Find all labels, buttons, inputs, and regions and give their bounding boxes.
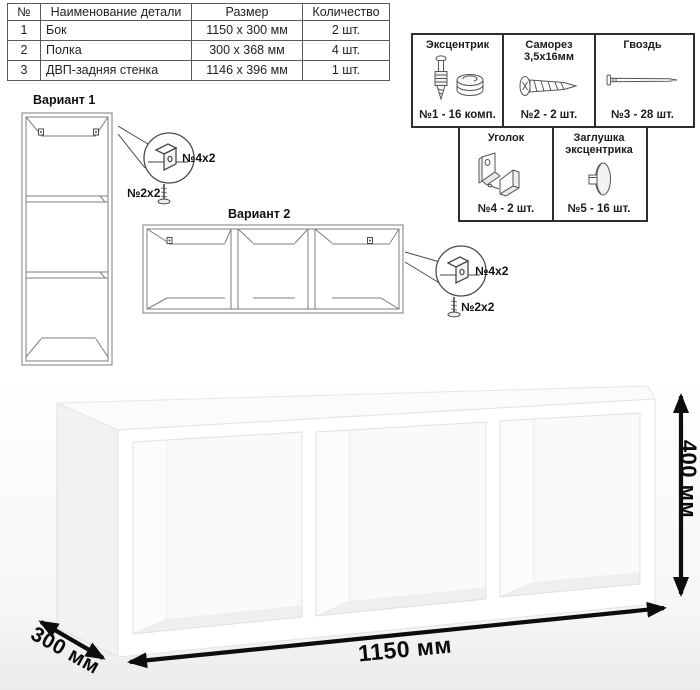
nail-icon	[603, 70, 683, 90]
variant2-screw-label: №2х2	[461, 300, 494, 314]
part-name: Бок	[41, 21, 192, 41]
hardware-item-nail: Гвоздь №3 - 28 шт.	[594, 35, 689, 126]
part-name: Полка	[41, 41, 192, 61]
variant1-bracket-label: №4х2	[182, 151, 215, 165]
part-num: 1	[8, 21, 41, 41]
corner-bracket-icon	[473, 150, 539, 198]
table-row: 3 ДВП-задняя стенка 1146 x 396 мм 1 шт.	[8, 61, 390, 81]
hardware-item-cam-cap: Заглушка эксцентрика №5 - 16 шт.	[552, 128, 644, 220]
part-size: 1146 x 396 мм	[192, 61, 303, 81]
variant1-screw-label: №2х2	[127, 186, 160, 200]
hardware-item-subtitle: эксцентрика	[565, 144, 633, 156]
part-size: 300 x 368 мм	[192, 41, 303, 61]
hardware-item-count: №2 - 2 шт.	[521, 109, 577, 121]
part-qty: 4 шт.	[303, 41, 390, 61]
hardware-item-title: Эксцентрик	[426, 39, 489, 51]
hardware-item-title: Заглушка	[573, 132, 624, 144]
hardware-item-screw: Саморез 3,5х16мм №2 - 2 шт.	[502, 35, 594, 126]
assembly-instruction-sheet: { "parts_table": { "headers": ["№", "Наи…	[0, 0, 700, 690]
hardware-item-count: №3 - 28 шт.	[611, 109, 674, 121]
part-qty: 1 шт.	[303, 61, 390, 81]
parts-table-header-row: № Наименование детали Размер Количество	[8, 4, 390, 21]
screw-icon	[516, 70, 582, 102]
hardware-item-subtitle: 3,5х16мм	[524, 51, 574, 63]
variant2-bracket-label: №4х2	[475, 264, 508, 278]
hardware-item-title: Гвоздь	[623, 39, 661, 51]
bracket-marks	[167, 238, 373, 244]
part-num: 3	[8, 61, 41, 81]
col-header-qty: Количество	[303, 4, 390, 21]
height-dimension-label: 400 мм	[675, 419, 700, 539]
parts-table: № Наименование детали Размер Количество …	[7, 3, 390, 81]
table-row: 2 Полка 300 x 368 мм 4 шт.	[8, 41, 390, 61]
hardware-box-top-row: Эксцентрик №1 - 16 комп.	[411, 33, 695, 128]
col-header-name: Наименование детали	[41, 4, 192, 21]
hardware-item-title: Саморез	[525, 39, 572, 51]
table-row: 1 Бок 1150 x 300 мм 2 шт.	[8, 21, 390, 41]
eccentric-cam-icon	[422, 54, 494, 106]
hardware-item-count: №1 - 16 комп.	[419, 109, 496, 121]
hardware-item-title: Уголок	[488, 132, 524, 144]
bracket-marks	[39, 129, 99, 135]
cam-cap-icon	[578, 159, 620, 201]
part-num: 2	[8, 41, 41, 61]
hardware-item-eccentric: Эксцентрик №1 - 16 комп.	[413, 35, 502, 126]
part-size: 1150 x 300 мм	[192, 21, 303, 41]
part-qty: 2 шт.	[303, 21, 390, 41]
part-name: ДВП-задняя стенка	[41, 61, 192, 81]
hardware-item-count: №5 - 16 шт.	[568, 203, 631, 215]
col-header-size: Размер	[192, 4, 303, 21]
col-header-num: №	[8, 4, 41, 21]
